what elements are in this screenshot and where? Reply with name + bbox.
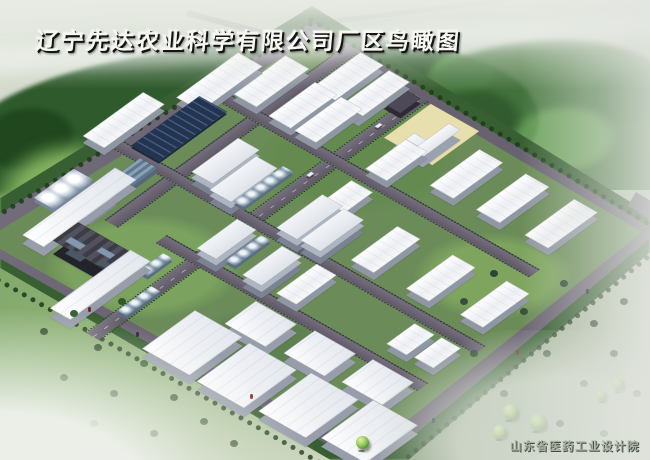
mist-bottom-left	[0, 300, 340, 460]
watermark-credit: 山东省医药工业设计院	[510, 438, 640, 454]
page-title: 辽宁先达农业科学有限公司厂区鸟瞰图	[35, 22, 463, 56]
tree-icon	[356, 436, 369, 449]
aerial-rendering: 辽宁先达农业科学有限公司厂区鸟瞰图 山东省医药工业设计院	[0, 0, 650, 460]
